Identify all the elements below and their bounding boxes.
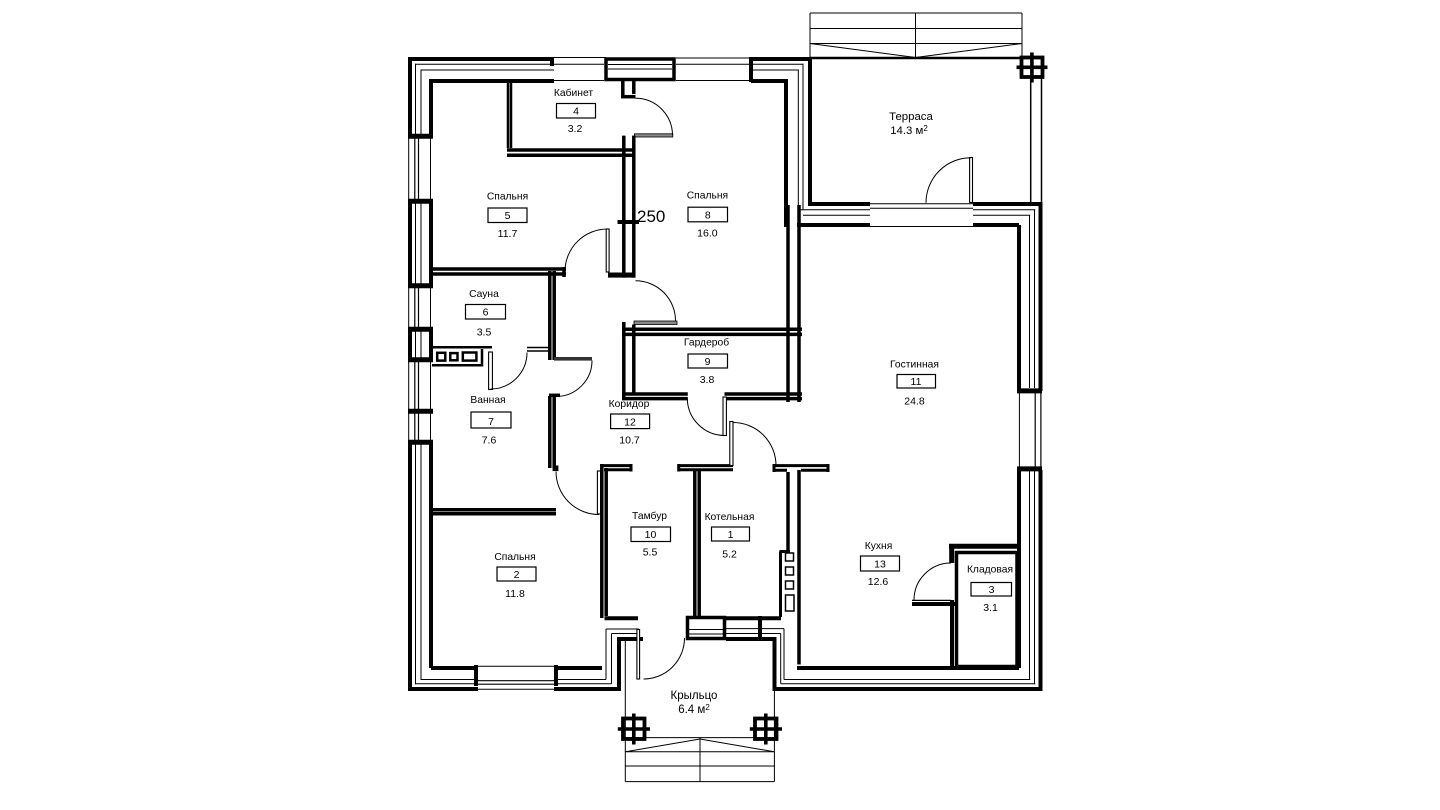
svg-text:3.5: 3.5 [477,327,492,339]
svg-text:11.7: 11.7 [498,228,518,240]
svg-text:2: 2 [514,569,520,581]
svg-text:4: 4 [573,106,579,118]
svg-text:24.8: 24.8 [904,396,925,408]
svg-text:7: 7 [488,416,494,428]
svg-text:Спальня: Спальня [487,192,528,203]
svg-text:Сауна: Сауна [469,289,499,300]
svg-text:3.8: 3.8 [700,374,715,386]
svg-text:7.6: 7.6 [482,435,497,447]
svg-text:5.5: 5.5 [643,547,658,559]
svg-text:12.6: 12.6 [868,576,889,588]
svg-text:Тамбур: Тамбур [632,510,667,522]
svg-text:Котельная: Котельная [705,512,755,523]
svg-text:3: 3 [989,584,995,596]
svg-text:3.2: 3.2 [568,123,583,135]
svg-text:Кабинет: Кабинет [554,87,593,99]
svg-text:5.2: 5.2 [722,549,737,561]
svg-text:Гардероб: Гардероб [684,337,729,349]
svg-text:12: 12 [624,417,636,429]
svg-text:Спальня: Спальня [494,552,535,563]
svg-text:Спальня: Спальня [687,190,728,201]
svg-text:10.7: 10.7 [619,435,640,447]
svg-text:11: 11 [911,376,922,388]
svg-text:Ванная: Ванная [470,395,505,406]
svg-text:250: 250 [637,207,665,226]
svg-text:14.3 м2: 14.3 м2 [890,124,928,137]
svg-text:3.1: 3.1 [983,602,998,614]
svg-text:13: 13 [874,559,886,571]
svg-text:1: 1 [728,529,734,541]
svg-text:9: 9 [705,356,711,368]
svg-text:Кладовая: Кладовая [967,565,1013,576]
svg-text:11.8: 11.8 [505,588,525,600]
svg-text:Крыльцо: Крыльцо [671,690,718,702]
svg-text:8: 8 [705,210,711,222]
svg-text:Коридор: Коридор [609,399,650,410]
svg-text:Гостинная: Гостинная [890,360,939,371]
svg-text:5: 5 [505,210,511,222]
svg-text:Кухня: Кухня [865,541,893,552]
svg-text:10: 10 [645,529,657,541]
svg-text:16.0: 16.0 [697,228,718,240]
svg-text:Терраса: Терраса [889,111,933,123]
svg-text:6: 6 [483,307,489,319]
